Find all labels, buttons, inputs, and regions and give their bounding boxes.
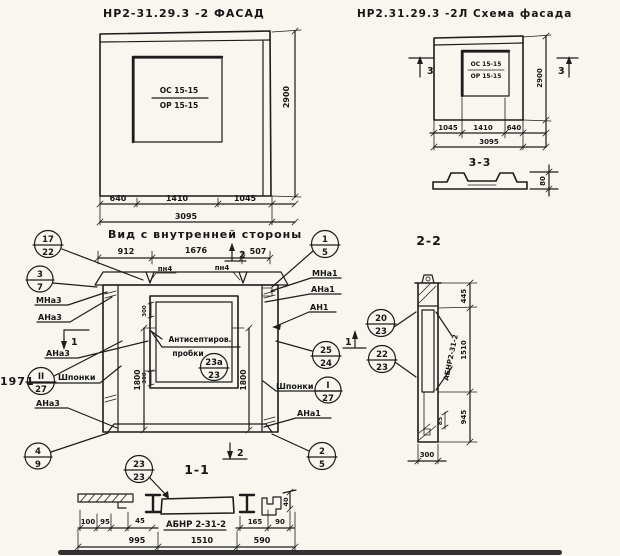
scheme-window-mark-bottom: ОР 15-15: [471, 73, 502, 80]
facade-dim-height: 2900: [282, 85, 291, 108]
s11-dim-100: 100: [81, 518, 96, 526]
s11-dim-165: 165: [248, 518, 263, 526]
scheme-dim-1045: 1045: [438, 124, 458, 132]
inner-body-outline: [103, 285, 278, 432]
callout-bottom: 5: [319, 460, 325, 470]
scheme-cut-label-left: 3: [427, 66, 434, 77]
inner-plug-dim-bottom: 300: [142, 372, 148, 384]
inner-dim-912: 912: [118, 247, 135, 256]
callout-3-7: 3 7: [26, 266, 54, 293]
callout-bottom: 24: [320, 359, 332, 369]
callout-top: 17: [42, 235, 54, 245]
inner-cut1-right-arrow: [352, 330, 358, 339]
callout-top: 23: [133, 460, 145, 470]
callout-top: II: [38, 372, 44, 382]
scheme-window-mark-top: ОС 15-15: [471, 61, 502, 68]
inner-plug-dim-top: 300: [142, 305, 148, 317]
inner-note-line2: пробки: [172, 349, 203, 358]
facade-dim-1410: 1410: [166, 194, 189, 203]
facade-window-mark-top: ОС 15-15: [160, 86, 198, 95]
drawing-sheet: НР2-31.29.3 -2 ФАСАД ОС 15-15 ОР 15-15 2…: [0, 0, 620, 556]
inner-dim-1676: 1676: [185, 246, 208, 255]
s11-mark: АБНР 2-31-2: [166, 520, 226, 530]
inner-cut1-right-label: 1: [345, 337, 352, 348]
callout-bottom: 22: [42, 248, 54, 258]
s11-dim-45: 45: [135, 517, 145, 525]
s11-dim-90: 90: [275, 518, 285, 526]
facade-window-frame: [133, 57, 222, 142]
callout-top: 20: [375, 314, 387, 324]
callout-bottom: 7: [37, 283, 43, 293]
scheme-dim-height: 2900: [536, 68, 544, 88]
inner-label-ana3-2: АНа3: [46, 349, 70, 358]
s22-lifting-loop: [426, 277, 430, 281]
facade-window-outline: [134, 58, 222, 142]
s22-dim-1510: 1510: [460, 340, 468, 360]
s22-dim-300: 300: [420, 451, 435, 459]
inner-label-shponki-left: Шпонки: [58, 373, 95, 382]
s11-dim-1510: 1510: [191, 536, 214, 545]
scheme-drawing: НР2.31.29.3 -2Л Схема фасада ОС 15-15 ОР…: [357, 8, 578, 196]
facade-drawing: НР2-31.29.3 -2 ФАСАД ОС 15-15 ОР 15-15 2…: [97, 7, 301, 225]
section-3-3-thickness: 80: [539, 176, 547, 186]
facade-panel-inner-lines: [100, 40, 270, 195]
callout-20-23-leader: [394, 312, 416, 327]
facade-dim-1045: 1045: [234, 194, 257, 203]
inner-columns: [118, 285, 262, 432]
drawing-svg: НР2-31.29.3 -2 ФАСАД ОС 15-15 ОР 15-15 2…: [0, 0, 620, 556]
callout-bottom: 23: [133, 473, 145, 483]
s22-mark: АБНР2-31-2: [442, 334, 460, 382]
s22-dim-85: 85: [437, 417, 444, 425]
inner-joint-leaders: [150, 272, 240, 281]
section-1-1-drawing: 1-1 АБНР 2-31-2 100 95 45 165 90 40 995 …: [75, 462, 298, 551]
inner-note-line1: Антисептиров.: [168, 335, 231, 344]
callout-23-23: 23 23: [124, 456, 169, 500]
callout-bottom: 27: [35, 385, 47, 395]
inner-label-ana1-1: АНа1: [311, 285, 335, 294]
callout-top: 25: [320, 346, 332, 356]
inner-cut2-bottom-label: 2: [237, 448, 244, 459]
inner-plug-dim-marks: [148, 302, 154, 386]
s11-slab: [161, 497, 234, 514]
callout-bottom: 23: [375, 327, 387, 337]
callout-top: 3: [37, 270, 43, 280]
inner-base-strip: [108, 424, 272, 432]
callout-2-5: 2 5: [307, 443, 337, 471]
callout-20-23: 20 23: [366, 310, 416, 338]
s11-dim-40: 40: [282, 497, 290, 507]
inner-view-drawing: Вид с внутренней стороны 912 1676 507 2 …: [0, 228, 366, 460]
facade-dim-total: 3095: [175, 212, 198, 221]
inner-cut1-left-label: 1: [71, 337, 78, 348]
scheme-dim-640: 640: [507, 124, 522, 132]
scheme-cut-label-right: 3: [558, 66, 565, 77]
s11-left-channel-hatch: [80, 494, 127, 502]
s11-dim-95: 95: [100, 518, 110, 526]
section-3-3-label: 3-3: [469, 156, 492, 169]
facade-panel-outline: [100, 31, 271, 196]
inner-an1-arrow: [272, 324, 281, 330]
callout-top: 1: [322, 235, 328, 245]
callout-bottom: 9: [35, 460, 41, 470]
section-3-3-profile: [433, 173, 527, 189]
callout-bottom: 23: [376, 363, 388, 373]
scheme-dim-1410: 1410: [473, 124, 493, 132]
scheme-cut-arrow-right: [566, 56, 572, 64]
inner-dim-1800-left: 1800: [133, 370, 142, 391]
s11-ibeam-1: [146, 495, 160, 512]
s22-dim-945: 945: [460, 410, 468, 425]
s22-recess: [422, 310, 434, 392]
section-1-1-label: 1-1: [184, 462, 210, 477]
callout-top: I: [326, 381, 329, 391]
inner-joint-label-2: пн4: [215, 264, 230, 272]
scheme-cut-arrow-left: [417, 56, 423, 64]
inner-label-ana3-3: АНа3: [36, 399, 60, 408]
facade-dim-lines: [100, 31, 295, 222]
facade-window-mark-bottom: ОР 15-15: [160, 101, 198, 110]
inner-dim-1800-right: 1800: [239, 370, 248, 391]
inner-label-ana3-1: АНа3: [38, 313, 62, 322]
callout-22-23: 22 23: [367, 346, 416, 378]
facade-title: НР2-31.29.3 -2 ФАСАД: [103, 7, 265, 20]
callout-23a-23: 23а 23: [199, 354, 229, 382]
s22-top-hatch: [419, 284, 436, 303]
inner-top-cap: [95, 272, 288, 285]
inner-cut2-top-arrow: [229, 243, 235, 251]
inner-cut2-top-label: 2: [239, 250, 246, 261]
scheme-title: НР2.31.29.3 -2Л Схема фасада: [357, 8, 572, 20]
inner-view-title: Вид с внутренней стороны: [108, 228, 302, 241]
callout-1-5: 1 5: [310, 231, 340, 259]
callout-bottom: 5: [322, 248, 328, 258]
callout-bottom: 23: [208, 371, 220, 381]
inner-cap-notches: [146, 272, 247, 283]
scan-edge-bar: [58, 550, 562, 555]
inner-label-shponki-right: Шпонки: [276, 382, 313, 391]
s22-bottom-details: [419, 392, 436, 440]
callout-17-22: 17 22: [33, 231, 63, 259]
callout-22-23-leader: [395, 362, 416, 377]
facade-dim-640: 640: [110, 194, 127, 203]
s22-dim-445: 445: [460, 289, 468, 304]
s11-dim-590: 590: [254, 536, 271, 545]
callout-top: 22: [376, 350, 388, 360]
section-2-2-drawing: 2-2 АБНР2-31-2 445 1510 945 85 300: [408, 233, 477, 464]
callout-25-24: 25 24: [311, 342, 341, 370]
s11-ibeam-2: [240, 495, 254, 512]
callout-bottom: 27: [322, 394, 334, 404]
callout-top: 23а: [205, 358, 223, 368]
inner-label-ana1-2: АНа1: [297, 409, 321, 418]
scheme-dim-total: 3095: [479, 138, 499, 146]
section-2-2-label: 2-2: [416, 233, 442, 248]
scheme-panel-inner-line: [434, 43, 523, 45]
callout-I-27: I 27: [314, 377, 342, 404]
s11-right-channel: [262, 497, 281, 515]
callout-top: 4: [35, 447, 41, 457]
inner-label-mna3: МНа3: [36, 296, 62, 305]
callout-4-9: 4 9: [24, 443, 52, 470]
callout-top: 2: [319, 447, 325, 457]
s11-bottom-dim-extensions: [78, 512, 295, 551]
inner-dim-507: 507: [250, 247, 267, 256]
inner-label-mna1: МНа1: [312, 269, 338, 278]
inner-label-an1: АН1: [310, 303, 329, 312]
s11-dim-995: 995: [129, 536, 146, 545]
